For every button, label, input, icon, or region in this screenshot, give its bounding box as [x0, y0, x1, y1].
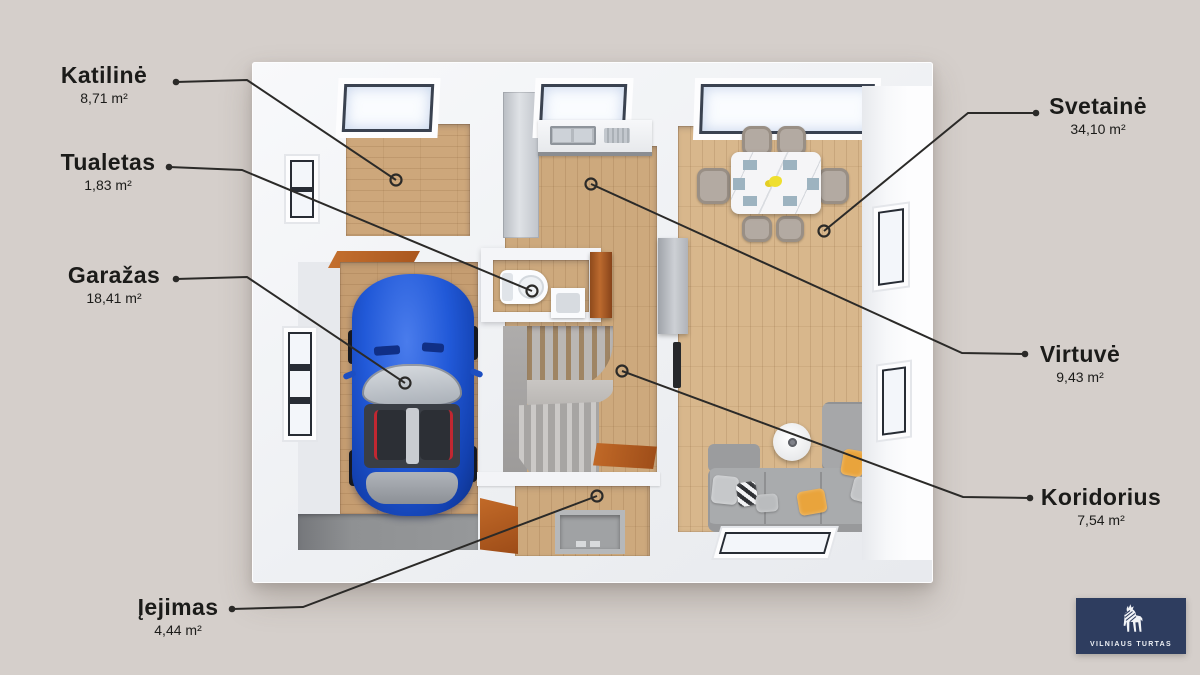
room-label-garazas: Garažas18,41 m²: [24, 263, 204, 307]
wooden-cabinet: [590, 252, 612, 318]
sink-basin: [556, 293, 580, 313]
placemat: [733, 178, 745, 190]
room-area: 9,43 m²: [990, 369, 1170, 386]
coffee-table: [773, 423, 811, 461]
stairs-lower-flight: [519, 402, 599, 482]
car-hood-vent: [374, 345, 401, 356]
gray-pillow: [755, 493, 778, 512]
placemat: [743, 196, 757, 206]
dining-chair: [776, 216, 804, 242]
room-area: 8,71 m²: [14, 90, 194, 107]
blue-car: [352, 274, 474, 516]
wall-tv: [673, 342, 681, 388]
toilet-room: [481, 248, 601, 322]
room-label-koridorius: Koridorius7,54 m²: [1011, 485, 1191, 529]
car-seat: [374, 410, 407, 460]
room-label-iejimas: Įejimas4,44 m²: [88, 595, 268, 639]
placemat: [743, 160, 757, 170]
room-label-katiline: Katilinė8,71 m²: [14, 63, 194, 107]
entrance-mat: [555, 510, 625, 554]
sink-basin: [574, 129, 592, 142]
table-item: [788, 438, 797, 447]
boiler-room-floor: [346, 124, 470, 236]
living-room-window: [874, 204, 908, 291]
entrance-wall: [477, 472, 660, 486]
flower-centerpiece: [769, 176, 782, 187]
garage-apron: [298, 514, 478, 550]
toilet-tank: [502, 273, 513, 301]
right-wall: [862, 86, 933, 560]
room-area: 18,41 m²: [24, 290, 204, 307]
room-label-tualetas: Tualetas1,83 m²: [18, 150, 198, 194]
kitchen-island-counter: [658, 238, 688, 334]
dining-chair: [697, 168, 730, 204]
dining-chair: [818, 168, 849, 204]
bathroom-sink: [551, 288, 585, 318]
living-room-window: [878, 362, 910, 440]
logo-text: VILNIAUS TURTAS: [1090, 640, 1172, 650]
building-floor-plan: [252, 62, 933, 583]
room-name: Koridorius: [1011, 485, 1191, 510]
floor-plan-poster: Katilinė8,71 m²Tualetas1,83 m²Garažas18,…: [0, 0, 1200, 675]
boiler-room-window: [286, 156, 318, 222]
car-seat: [420, 410, 453, 460]
placemat: [783, 196, 797, 206]
room-name: Tualetas: [18, 150, 198, 175]
toilet-bowl: [518, 275, 544, 299]
kitchen-sink: [550, 126, 596, 145]
car-console: [406, 408, 419, 464]
room-name: Katilinė: [14, 63, 194, 88]
room-name: Svetainė: [1008, 94, 1188, 119]
dining-chair: [742, 216, 772, 242]
living-room-bottom-window: [714, 528, 837, 558]
car-hood-vent: [422, 342, 445, 353]
room-name: Virtuvė: [990, 342, 1170, 367]
boiler-room-skylight: [342, 84, 435, 132]
car-rear-deck: [366, 472, 458, 504]
open-door: [480, 498, 518, 554]
garage-window: [284, 328, 316, 440]
mat-detail: [576, 541, 586, 547]
room-area: 34,10 m²: [1008, 121, 1188, 138]
room-label-svetaine: Svetainė34,10 m²: [1008, 94, 1188, 138]
toilet: [500, 270, 548, 304]
agency-logo: VILNIAUS TURTAS: [1076, 598, 1186, 654]
wolf-icon: [1114, 601, 1148, 635]
sink-basin: [553, 129, 571, 142]
kitchen-counter: [538, 120, 652, 156]
car-cabin: [364, 404, 460, 468]
kitchen-tall-cabinet: [503, 92, 539, 238]
room-name: Įejimas: [88, 595, 268, 620]
dish-rack: [604, 128, 630, 143]
gray-pillow: [711, 475, 740, 506]
room-area: 4,44 m²: [88, 622, 268, 639]
orange-pillow: [796, 488, 828, 516]
dining-table: [731, 152, 821, 214]
placemat: [807, 178, 819, 190]
room-area: 7,54 m²: [1011, 512, 1191, 529]
room-name: Garažas: [24, 263, 204, 288]
placemat: [783, 160, 797, 170]
room-area: 1,83 m²: [18, 177, 198, 194]
room-label-virtuve: Virtuvė9,43 m²: [990, 342, 1170, 386]
open-door: [593, 443, 657, 469]
